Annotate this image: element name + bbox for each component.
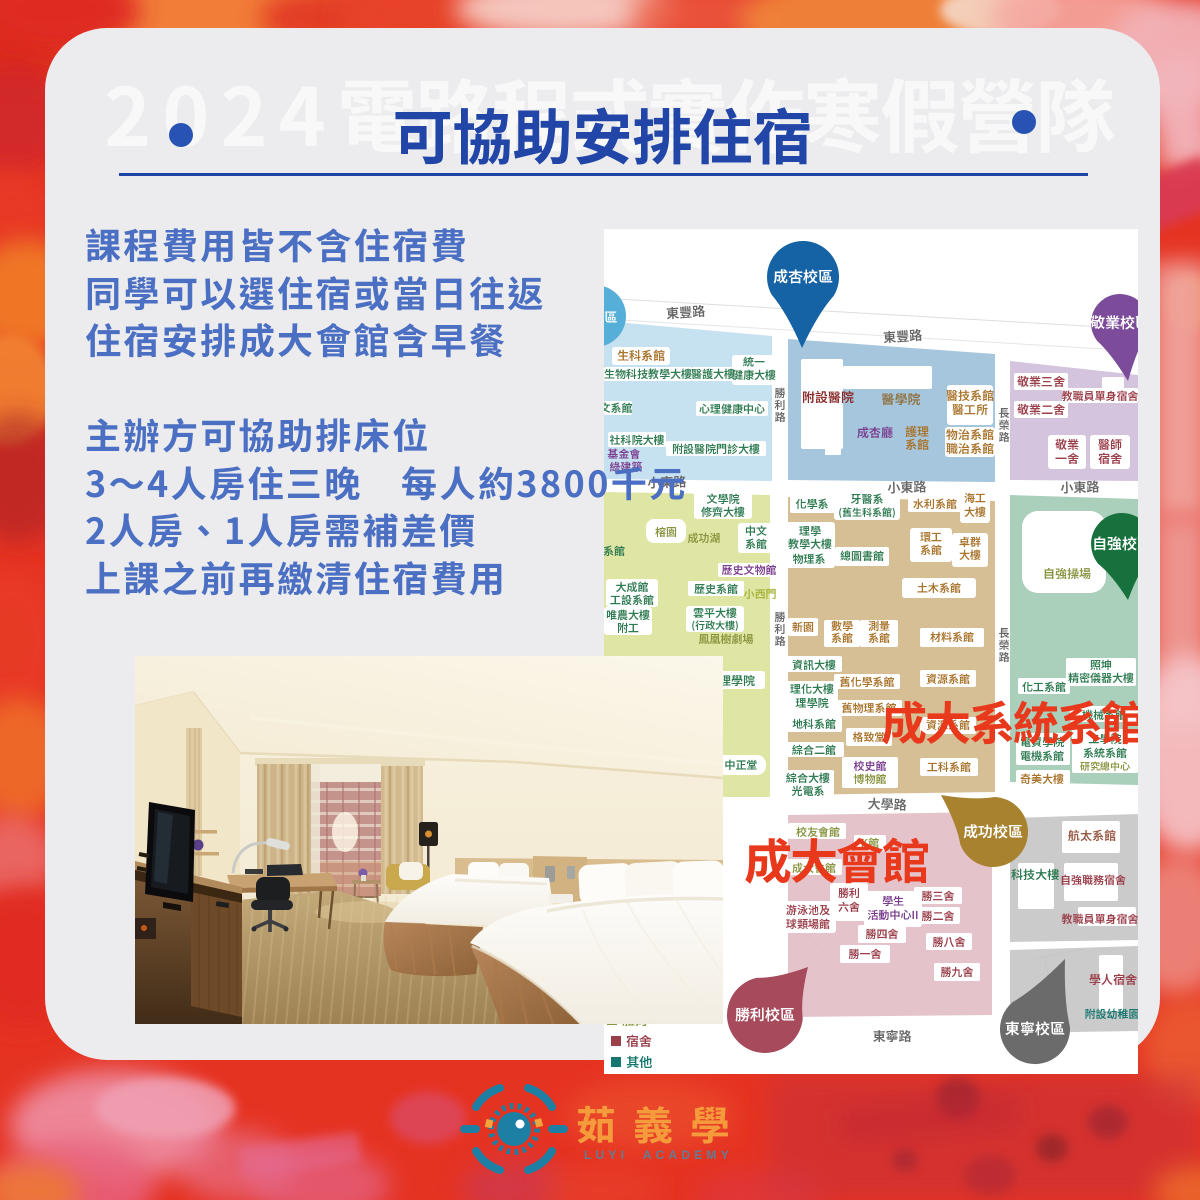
svg-text:成大系統系館: 成大系統系館 (881, 688, 1138, 754)
svg-text:小東路: 小東路 (1060, 476, 1100, 496)
svg-text:一舍: 一舍 (1055, 450, 1080, 467)
svg-text:宿舍: 宿舍 (1098, 450, 1123, 467)
svg-text:六舍: 六舍 (838, 899, 860, 915)
svg-text:光電系: 光電系 (792, 783, 825, 799)
svg-text:東豐路: 東豐路 (882, 325, 922, 347)
svg-text:新園: 新園 (792, 619, 814, 635)
svg-text:精密儀器大樓: 精密儀器大樓 (1068, 670, 1135, 686)
svg-text:理學院: 理學院 (796, 695, 829, 711)
svg-text:大樓: 大樓 (959, 547, 982, 563)
svg-text:勝四舍: 勝四舍 (866, 926, 899, 942)
svg-text:勝二舍: 勝二舍 (922, 908, 955, 924)
svg-text:球類場館: 球類場館 (786, 916, 830, 932)
svg-text:教學大樓: 教學大樓 (788, 536, 833, 552)
svg-text:教職員單身宿舍: 教職員單身宿舍 (1062, 911, 1139, 927)
svg-text:自強校區: 自強校區 (1092, 533, 1138, 554)
svg-text:水利系館: 水利系館 (913, 496, 957, 512)
svg-text:鳳凰樹劇場: 鳳凰樹劇場 (699, 631, 754, 647)
svg-text:綜合二館: 綜合二館 (792, 742, 836, 758)
svg-text:資源系館: 資源系館 (926, 671, 970, 687)
svg-text:中正堂: 中正堂 (725, 757, 758, 773)
svg-text:大學路: 大學路 (867, 793, 907, 813)
svg-text:醫護大樓: 醫護大樓 (691, 366, 736, 382)
svg-text:系館: 系館 (920, 542, 942, 558)
svg-text:系館: 系館 (905, 436, 929, 453)
svg-text:醫學院: 醫學院 (881, 389, 921, 408)
svg-text:敬業校區: 敬業校區 (1090, 312, 1138, 333)
svg-text:自強職務宿舍: 自強職務宿舍 (1060, 872, 1126, 888)
svg-text:研究總中心: 研究總中心 (1080, 758, 1130, 773)
svg-text:自強操場: 自強操場 (1043, 565, 1091, 582)
svg-text:成杏廳: 成杏廳 (857, 424, 893, 441)
svg-text:大樓: 大樓 (964, 504, 987, 520)
svg-text:化學系: 化學系 (796, 496, 829, 512)
svg-text:科技大樓: 科技大樓 (1010, 866, 1059, 883)
svg-text:附設幼稚園: 附設幼稚園 (1085, 1006, 1139, 1022)
svg-text:醫工所: 醫工所 (952, 401, 989, 418)
svg-text:成功湖: 成功湖 (688, 530, 721, 546)
svg-text:博物館: 博物館 (854, 771, 887, 787)
svg-text:成功校區: 成功校區 (963, 821, 1023, 842)
svg-text:勝一舍: 勝一舍 (849, 946, 882, 962)
svg-text:東寧校區: 東寧校區 (1005, 1018, 1065, 1039)
svg-text:學人宿舍: 學人宿舍 (1089, 971, 1138, 988)
svg-text:職治系館: 職治系館 (946, 440, 994, 457)
svg-text:勝八舍: 勝八舍 (933, 934, 966, 950)
svg-text:資訊大樓: 資訊大樓 (792, 657, 837, 673)
svg-text:勝利路: 勝利路 (775, 609, 787, 649)
svg-text:地科系館: 地科系館 (792, 716, 836, 732)
svg-text:附工: 附工 (617, 620, 639, 636)
svg-text:土木系館: 土木系館 (917, 580, 961, 596)
svg-text:物理系: 物理系 (792, 551, 826, 567)
svg-text:其他: 其他 (626, 1052, 652, 1071)
svg-text:教職員單身宿舍: 教職員單身宿舍 (1062, 388, 1139, 404)
svg-text:健康大樓: 健康大樓 (731, 367, 777, 383)
svg-text:勝利校區: 勝利校區 (735, 1004, 795, 1025)
svg-text:宿舍: 宿舍 (626, 1031, 652, 1050)
svg-text:敬業二舍: 敬業二舍 (1017, 401, 1066, 418)
svg-text:勝九舍: 勝九舍 (941, 964, 974, 980)
svg-text:(舊生科系館): (舊生科系館) (838, 504, 895, 519)
svg-text:長榮路: 長榮路 (999, 625, 1011, 665)
svg-text:系館: 系館 (831, 630, 853, 646)
svg-text:奇美大樓: 奇美大樓 (1020, 771, 1065, 787)
svg-text:心理健康中心: 心理健康中心 (699, 401, 765, 417)
svg-text:工科系館: 工科系館 (927, 759, 971, 775)
svg-text:活動中心II: 活動中心II (867, 907, 918, 923)
svg-text:成杏校區: 成杏校區 (773, 266, 833, 287)
svg-text:成大會館: 成大會館 (744, 823, 928, 893)
svg-text:勝利路: 勝利路 (775, 385, 787, 425)
svg-text:東寧路: 東寧路 (872, 1026, 911, 1045)
svg-text:歷史文物館: 歷史文物館 (722, 562, 777, 578)
svg-text:修齊大樓: 修齊大樓 (701, 504, 746, 520)
svg-text:(行政大樓): (行政大樓) (691, 617, 738, 632)
svg-text:航太系館: 航太系館 (1067, 827, 1116, 844)
svg-text:附設醫院: 附設醫院 (802, 387, 855, 406)
svg-text:小西門: 小西門 (744, 586, 777, 602)
svg-text:小東路: 小東路 (887, 476, 927, 496)
svg-text:敬業三舍: 敬業三舍 (1017, 373, 1066, 390)
svg-text:長榮路: 長榮路 (999, 405, 1011, 445)
svg-text:理學院: 理學院 (719, 672, 755, 689)
svg-text:材料系館: 材料系館 (929, 629, 974, 645)
svg-text:系館: 系館 (745, 536, 767, 552)
svg-text:總圖書館: 總圖書館 (840, 548, 884, 564)
svg-text:系館: 系館 (868, 630, 890, 646)
svg-text:歷史系館: 歷史系館 (694, 581, 738, 597)
